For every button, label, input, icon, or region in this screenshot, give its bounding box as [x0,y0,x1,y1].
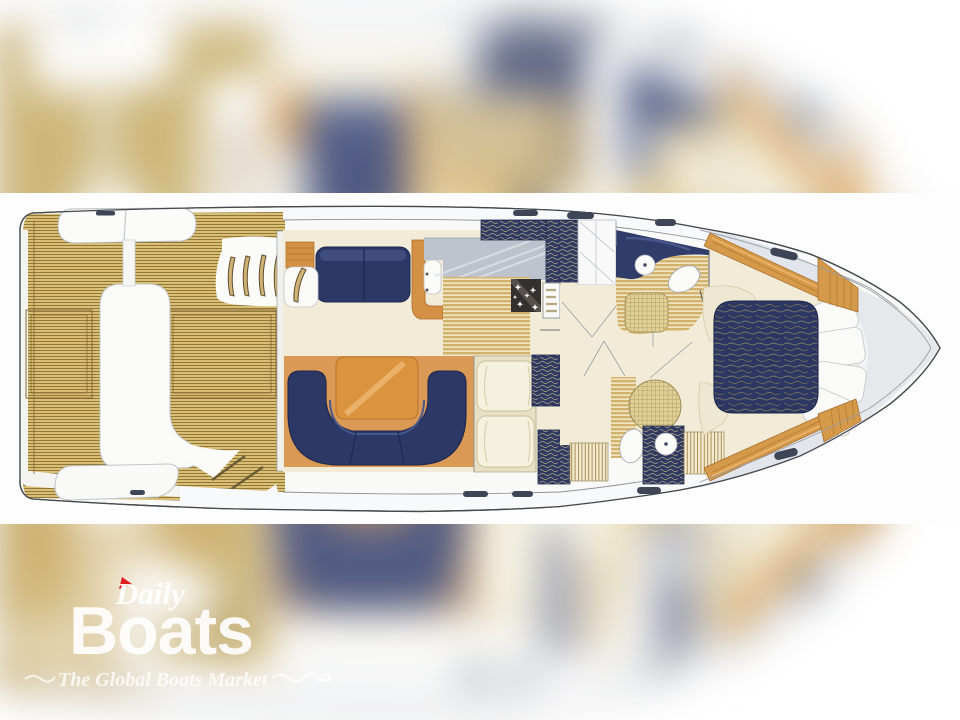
svg-text:The Global Boats Market: The Global Boats Market [58,669,269,691]
svg-text:Boats: Boats [69,593,253,669]
